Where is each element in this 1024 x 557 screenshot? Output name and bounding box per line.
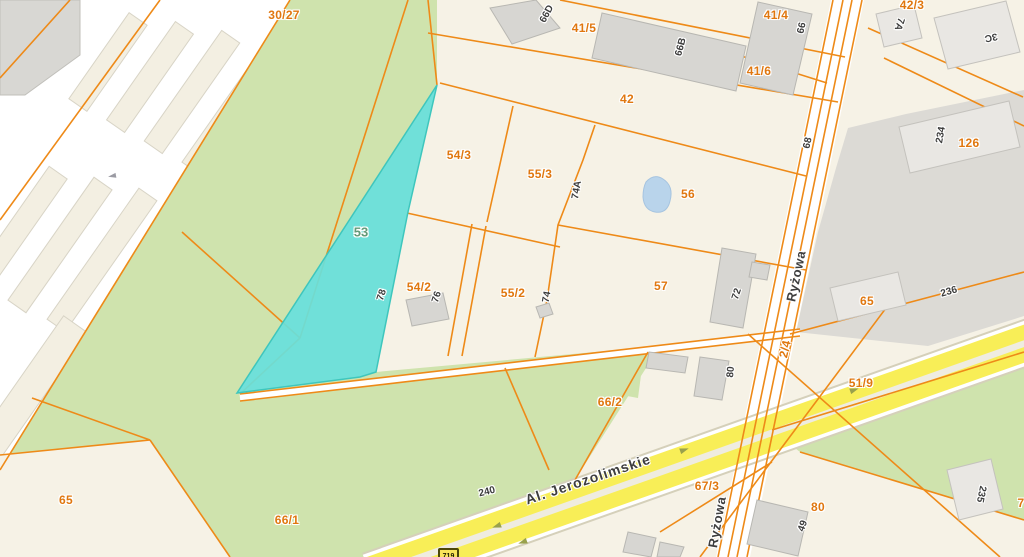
map-layers (0, 0, 1024, 557)
pond (643, 177, 671, 213)
building-72-wing (749, 262, 770, 280)
map-canvas[interactable]: 30/27 41/5 41/4 42/3 41/6 42 126 54/3 55… (0, 0, 1024, 557)
route-number-badge: 719 (438, 548, 459, 557)
